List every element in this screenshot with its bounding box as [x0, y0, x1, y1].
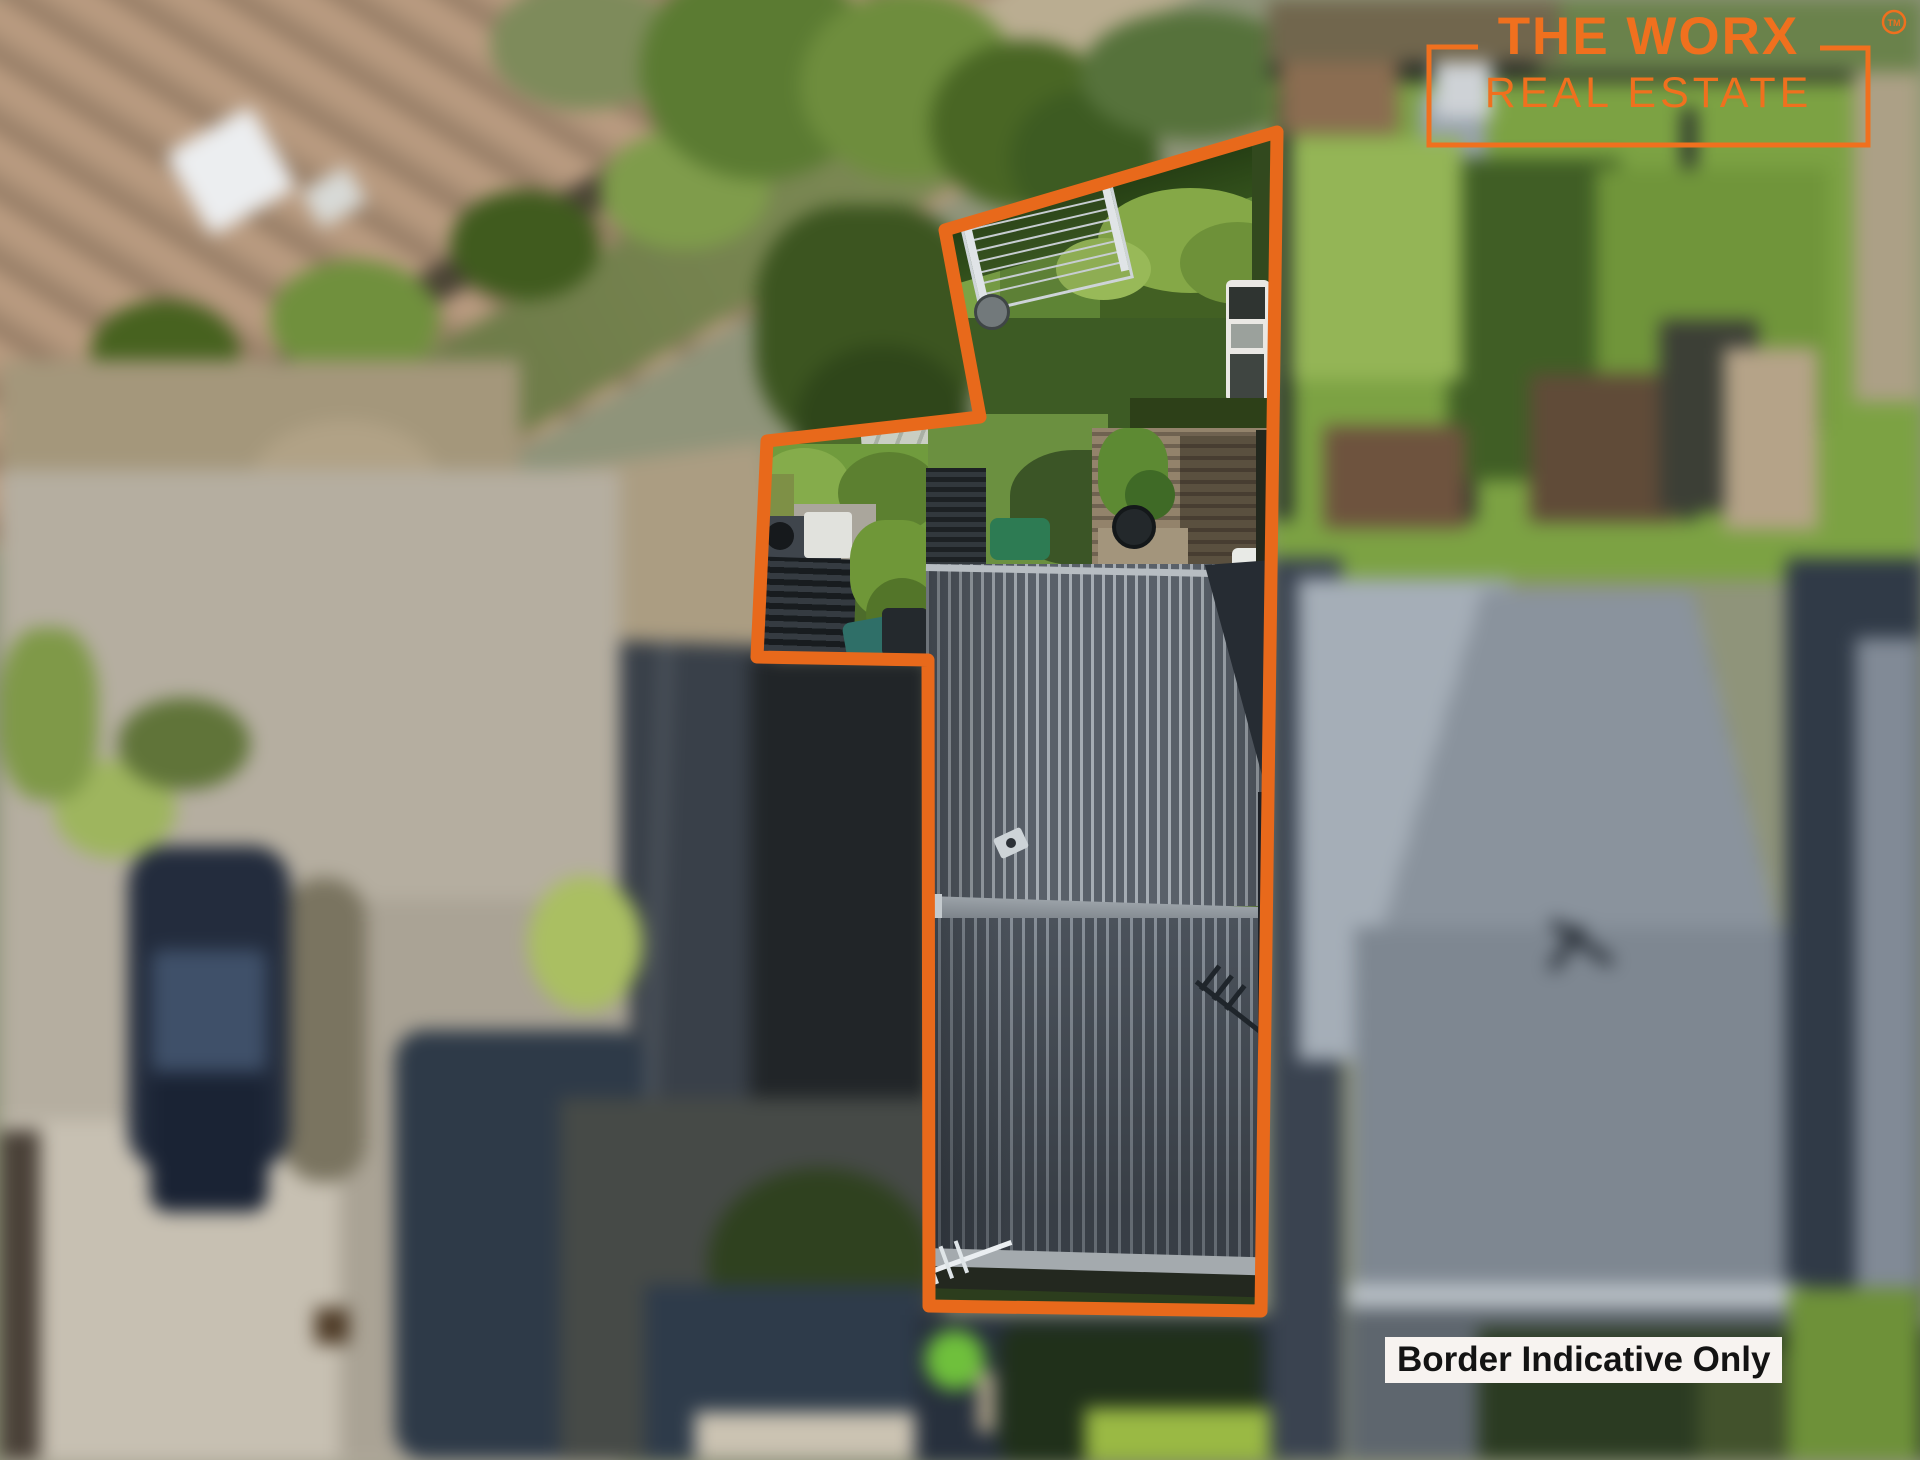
property-border-outline: [0, 0, 1920, 1460]
aerial-photo: TM THE WORX REAL ESTATE Border Indicativ…: [0, 0, 1920, 1460]
logo-title: THE WORX: [1429, 10, 1868, 63]
logo-subtitle: REAL ESTATE: [1429, 72, 1868, 115]
trademark-text: TM: [1888, 18, 1901, 28]
border-disclaimer-label: Border Indicative Only: [1385, 1337, 1782, 1383]
disclaimer-text: Border Indicative Only: [1397, 1340, 1770, 1379]
property-border-polygon: [757, 132, 1277, 1311]
brand-logo: TM THE WORX REAL ESTATE: [1424, 4, 1914, 154]
